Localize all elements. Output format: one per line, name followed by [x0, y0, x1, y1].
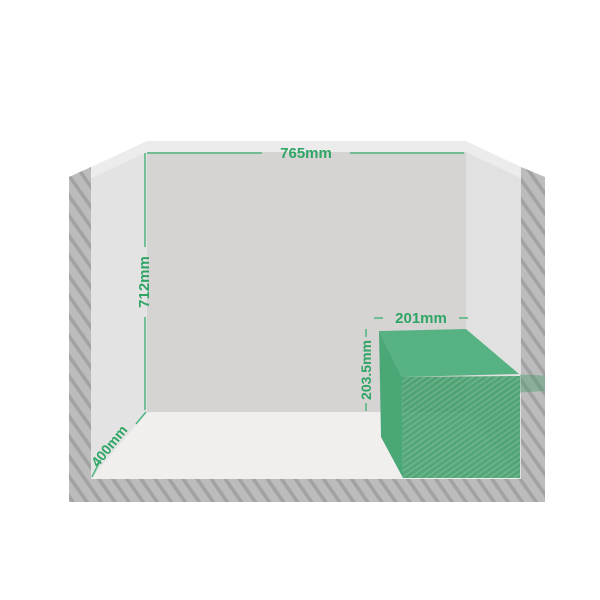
label-box-height: 203.5mm: [358, 340, 374, 400]
box-front-face-hatch: [402, 376, 520, 478]
box-overlap-frame: [520, 375, 545, 393]
dimension-diagram: 765mm 712mm 400mm 201mm 203.5mm: [0, 0, 600, 600]
label-width-top: 765mm: [280, 145, 332, 162]
label-box-width: 201mm: [395, 310, 447, 327]
diagram-canvas: 765mm 712mm 400mm 201mm 203.5mm: [0, 0, 600, 600]
label-height-left: 712mm: [136, 256, 153, 308]
